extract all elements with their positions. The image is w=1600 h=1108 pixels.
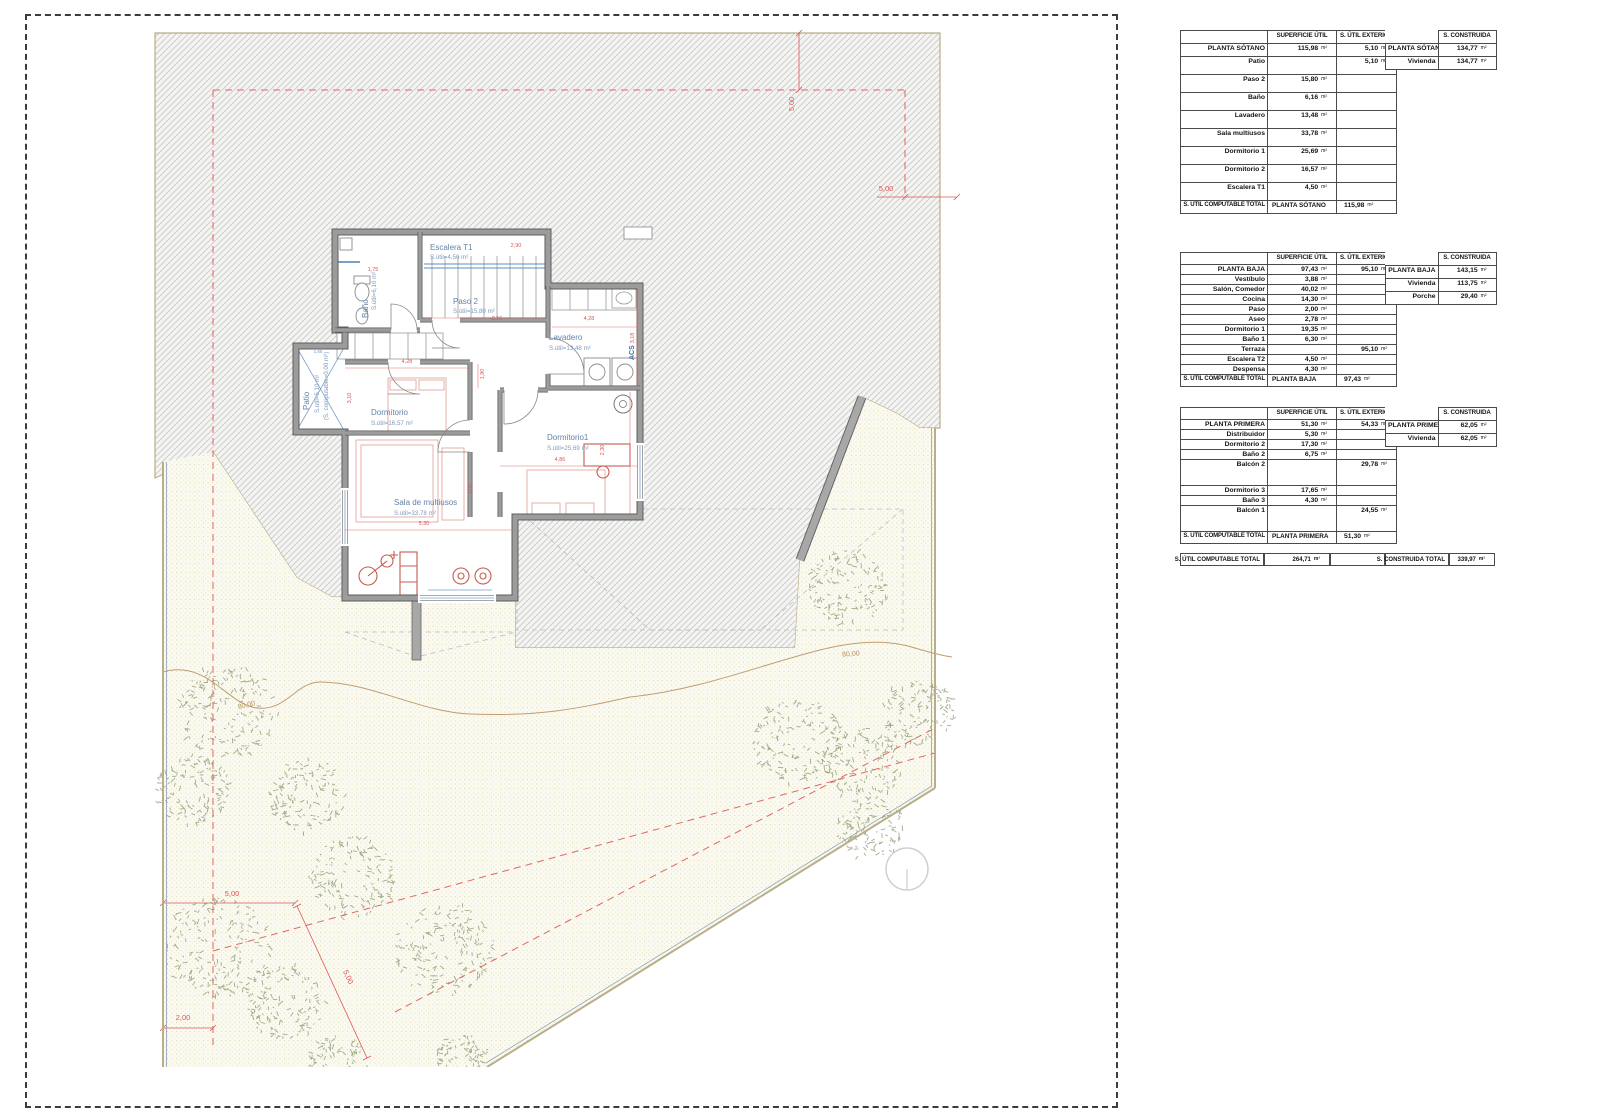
cell-value: 134,77 — [1457, 45, 1478, 52]
table-row: Vestíbulo3,88m² — [1181, 275, 1397, 285]
cell-value: 14,30 — [1301, 296, 1318, 303]
cell-value: 6,30 — [1305, 336, 1318, 343]
cell-value: 24,55 — [1361, 507, 1378, 514]
cell-value: 25,69 — [1301, 148, 1318, 155]
label-lavadero: Lavadero — [549, 333, 583, 342]
row-label: Aseo — [1181, 315, 1268, 325]
table-row: Baño 26,75m² — [1181, 450, 1397, 460]
cell-value: 5,10 — [1365, 58, 1378, 65]
row-label: Balcón 1 — [1181, 506, 1268, 532]
area-bano: S.útil=6,16 m² — [371, 272, 378, 310]
cell-value: 33,78 — [1301, 130, 1318, 137]
row-label: Paso — [1181, 305, 1268, 315]
row-label: Escalera T2 — [1181, 355, 1268, 365]
total-cell: S. ÚTIL COMPUTABLE TOTAL — [1180, 553, 1264, 566]
cell-value: 4,50 — [1305, 356, 1318, 363]
table-row: Aseo2,78m² — [1181, 315, 1397, 325]
dimension-label: 4,28 — [584, 316, 595, 322]
cell-value: 5,10 — [1365, 45, 1378, 52]
table-row: PLANTA SÓTANO134,77m² — [1386, 44, 1497, 57]
table-row: Vivienda62,05m² — [1386, 434, 1497, 447]
cell-value: 6,75 — [1305, 451, 1318, 458]
row-label: Baño — [1181, 93, 1268, 111]
cell-value: 95,10 — [1361, 346, 1378, 353]
areas-table-sotano: SUPERFICIE ÚTILS. ÚTIL EXTERIORPLANTA SÓ… — [1180, 30, 1500, 214]
table-row: PLANTA SÓTANO115,98m²5,10m² — [1181, 44, 1397, 57]
row-label: Dormitorio 2 — [1181, 165, 1268, 183]
dimension-label: 1,75 — [368, 267, 379, 273]
areas-table-baja-constructed: S. CONSTRUIDAPLANTA BAJA143,15m²Vivienda… — [1385, 252, 1497, 305]
table-row: Cocina14,30m² — [1181, 295, 1397, 305]
cell-value: 15,80 — [1301, 76, 1318, 83]
table-row: PLANTA BAJA143,15m² — [1386, 266, 1497, 279]
cell-value: 115,98 — [1298, 45, 1318, 52]
table-row: Patio5,10m² — [1181, 57, 1397, 75]
table-row: Balcón 124,55m² — [1181, 506, 1397, 532]
dimension-label: 3,18 — [630, 333, 636, 344]
area-paso2: S.útil=15,80 m² — [453, 308, 495, 315]
row-label: Dormitorio 2 — [1181, 440, 1268, 450]
table-row: Paso2,00m² — [1181, 305, 1397, 315]
areas-table-primera-constructed: S. CONSTRUIDAPLANTA PRIMERA62,05m²Vivien… — [1385, 407, 1497, 447]
cell-value: 17,65 — [1301, 487, 1318, 494]
cell-value: 5,30 — [1305, 431, 1318, 438]
row-label: PLANTA SÓTANO — [1181, 44, 1268, 57]
row-label: Dormitorio 1 — [1181, 325, 1268, 335]
dimension-label: 5,30 — [419, 521, 430, 527]
dimension-label: 3,10 — [347, 393, 353, 404]
table-row: Sala multiusos33,78m² — [1181, 129, 1397, 147]
table-row: Escalera T24,50m² — [1181, 355, 1397, 365]
area-escalera: S.útil=4,50 m² — [430, 254, 468, 261]
table-footer: S. ÚTIL COMPUTABLE TOTALPLANTA PRIMERA51… — [1181, 532, 1397, 544]
note-patio: (S. computable=0,00 m²) — [323, 352, 330, 420]
label-dormitorio1: Dormitorio1 — [547, 433, 589, 442]
row-label: Escalera T1 — [1181, 183, 1268, 201]
areas-table-sotano-constructed: S. CONSTRUIDAPLANTA SÓTANO134,77m²Vivien… — [1385, 30, 1497, 70]
table-row: Paso 215,80m² — [1181, 75, 1397, 93]
area-dormitorio1: S.útil=25,69 m² — [547, 445, 589, 452]
label-escalera: Escalera T1 — [430, 243, 473, 252]
area-dormitorio: S.útil=16,57 m² — [371, 420, 413, 427]
table-row: PLANTA BAJA97,43m²95,10m² — [1181, 265, 1397, 275]
dimension-label: 2,90 — [511, 243, 522, 249]
area-lavadero: S.útil=13,48 m² — [549, 345, 591, 352]
dimension-label: 1,90 — [480, 369, 486, 380]
row-label: PLANTA BAJA — [1181, 265, 1268, 275]
cell-value: 95,10 — [1361, 266, 1378, 273]
label-patio: Patio — [302, 391, 311, 410]
cell-value: 2,78 — [1305, 316, 1318, 323]
row-label: Lavadero — [1181, 111, 1268, 129]
area-patio: S.útil=5,10 m² — [314, 375, 321, 413]
dimension-label: 4,86 — [555, 457, 566, 463]
cell-value: 4,30 — [1305, 497, 1318, 504]
table-row: Vivienda134,77m² — [1386, 57, 1497, 70]
cell-value: 143,15 — [1457, 267, 1478, 274]
table-row: Distribuidor5,30m² — [1181, 430, 1397, 440]
row-label: Despensa — [1181, 365, 1268, 375]
row-label: Cocina — [1181, 295, 1268, 305]
table-footer: S. ÚTIL COMPUTABLE TOTALPLANTA SÓTANO115… — [1181, 201, 1397, 214]
dimension-label: 3,05 — [468, 484, 474, 495]
total-cell: S. CONSTRUIDA TOTAL — [1385, 553, 1449, 566]
row-label: PLANTA PRIMERA — [1181, 420, 1268, 430]
table-row: Dormitorio 216,57m² — [1181, 165, 1397, 183]
dimension-label: 4,28 — [402, 359, 413, 365]
table-row: PLANTA PRIMERA62,05m² — [1386, 421, 1497, 434]
drawing-sheet: { "plan": { "rooms": { "escalera": {"nam… — [0, 0, 1600, 1067]
label-acs: ACS — [629, 345, 636, 360]
dimension-label: 2,30 — [600, 445, 606, 456]
row-label: Baño 3 — [1181, 496, 1268, 506]
row-label: Distribuidor — [1181, 430, 1268, 440]
row-label: Dormitorio 3 — [1181, 486, 1268, 496]
cell-value: 4,30 — [1305, 366, 1318, 373]
row-label: Baño 1 — [1181, 335, 1268, 345]
cell-value: 17,30 — [1301, 441, 1318, 448]
cell-value: 62,05 — [1461, 435, 1478, 442]
dimension-label: 5,00 — [225, 889, 240, 898]
table-row: Dormitorio 317,65m² — [1181, 486, 1397, 496]
cell-value: 134,77 — [1457, 58, 1478, 65]
table-footer: S. ÚTIL COMPUTABLE TOTALPLANTA BAJA97,43… — [1181, 375, 1397, 387]
areas-table-primera: SUPERFICIE ÚTILS. ÚTIL EXTERIORPLANTA PR… — [1180, 407, 1500, 544]
cell-value: 62,05 — [1461, 422, 1478, 429]
table-row: Terraza95,10m² — [1181, 345, 1397, 355]
cell-value: 113,75 — [1457, 280, 1477, 287]
totals-util: S. ÚTIL COMPUTABLE TOTAL264,71m² — [1180, 553, 1385, 566]
cell-value: 16,57 — [1301, 166, 1318, 173]
cell-value: 54,33 — [1361, 421, 1378, 428]
row-label: Patio — [1181, 57, 1268, 75]
dimension-label: 2,16 — [492, 316, 503, 322]
cell-value: 29,78 — [1361, 461, 1378, 468]
row-label: Baño 2 — [1181, 450, 1268, 460]
table-row: Escalera T14,50m² — [1181, 183, 1397, 201]
row-label: Dormitorio 1 — [1181, 147, 1268, 165]
cell-value: 29,40 — [1461, 293, 1478, 300]
label-bano: Baño — [361, 299, 370, 318]
row-label: Paso 2 — [1181, 75, 1268, 93]
dimension-label: 2,00 — [176, 1013, 191, 1022]
table-row: Despensa4,30m² — [1181, 365, 1397, 375]
cell-value: 13,48 — [1301, 112, 1318, 119]
table-row: Baño 16,30m² — [1181, 335, 1397, 345]
label-dormitorio: Dormitorio — [371, 408, 408, 417]
table-row: Baño 34,30m² — [1181, 496, 1397, 506]
table-row: Baño6,16m² — [1181, 93, 1397, 111]
label-paso2: Paso 2 — [453, 297, 478, 306]
cell-value: 40,02 — [1301, 286, 1318, 293]
table-row: Dormitorio 125,69m² — [1181, 147, 1397, 165]
cell-value: 51,30 — [1301, 421, 1318, 428]
area-sala: S.útil=33,78 m² — [394, 510, 436, 517]
table-row: Salón, Comedor40,02m² — [1181, 285, 1397, 295]
total-cell: 339,97m² — [1449, 553, 1495, 566]
dimension-label: 5,00 — [787, 97, 796, 112]
row-label: Sala multiusos — [1181, 129, 1268, 147]
row-label: Balcón 2 — [1181, 460, 1268, 486]
dimension-label: 80,00 — [842, 650, 860, 658]
label-sala: Sala de multiusos — [394, 498, 457, 507]
survey-circle-symbol — [886, 848, 928, 890]
row-label: Vestíbulo — [1181, 275, 1268, 285]
table-row: Porche29,40m² — [1386, 292, 1497, 305]
cell-value: 19,35 — [1301, 326, 1318, 333]
areas-table-baja: SUPERFICIE ÚTILS. ÚTIL EXTERIORPLANTA BA… — [1180, 252, 1500, 387]
row-label: Salón, Comedor — [1181, 285, 1268, 295]
totals-constructed: S. CONSTRUIDA TOTAL339,97m² — [1385, 553, 1495, 566]
cell-value: 2,00 — [1305, 306, 1318, 313]
table-row: Vivienda113,75m² — [1386, 279, 1497, 292]
cell-value: 4,50 — [1305, 184, 1318, 191]
total-cell: 264,71m² — [1264, 553, 1330, 566]
cell-value: 3,88 — [1305, 276, 1318, 283]
dimension-label: 1,55 — [314, 349, 323, 354]
table-row: PLANTA PRIMERA51,30m²54,33m² — [1181, 420, 1397, 430]
cell-value: 97,43 — [1301, 266, 1318, 273]
dimension-label: 5,00 — [879, 184, 894, 193]
table-row: Dormitorio 217,30m² — [1181, 440, 1397, 450]
row-label: Terraza — [1181, 345, 1268, 355]
table-row: Lavadero13,48m² — [1181, 111, 1397, 129]
cell-value: 6,16 — [1305, 94, 1318, 101]
table-row: Balcón 229,78m² — [1181, 460, 1397, 486]
table-row: Dormitorio 119,35m² — [1181, 325, 1397, 335]
